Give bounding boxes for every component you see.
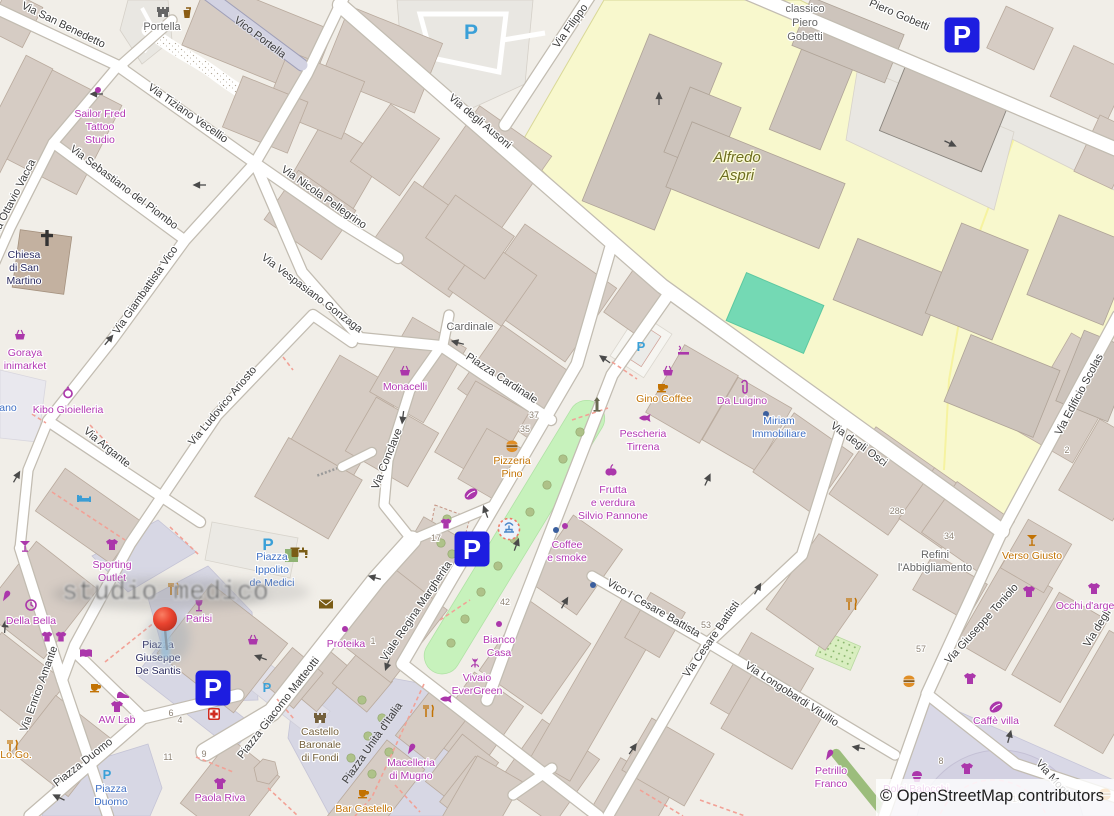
svg-text:Piazza: Piazza xyxy=(95,783,127,795)
svg-text:28c: 28c xyxy=(890,506,905,516)
svg-text:6: 6 xyxy=(168,708,173,718)
svg-text:Refini: Refini xyxy=(921,549,949,561)
svg-text:Duomo: Duomo xyxy=(94,796,128,808)
svg-text:Gino Coffee: Gino Coffee xyxy=(636,393,692,405)
svg-text:EverGreen: EverGreen xyxy=(452,685,503,697)
svg-text:Goraya: Goraya xyxy=(8,347,43,359)
svg-text:Occhi d'arge: Occhi d'arge xyxy=(1056,600,1114,612)
svg-text:© OpenStreetMap contributors: © OpenStreetMap contributors xyxy=(880,787,1104,805)
svg-text:Monacelli: Monacelli xyxy=(383,381,427,393)
svg-text:Macelleria: Macelleria xyxy=(387,757,435,769)
svg-text:P: P xyxy=(263,680,272,695)
svg-text:8: 8 xyxy=(938,756,943,766)
svg-text:Tattoo: Tattoo xyxy=(86,121,115,133)
svg-text:Portella: Portella xyxy=(143,21,181,33)
svg-text:P: P xyxy=(637,339,646,354)
svg-text:Lo.Go.: Lo.Go. xyxy=(0,749,32,761)
svg-text:17: 17 xyxy=(431,533,441,543)
svg-text:Piazza: Piazza xyxy=(256,551,288,563)
svg-text:37: 37 xyxy=(529,410,539,420)
svg-text:Verso Giusto: Verso Giusto xyxy=(1002,550,1062,562)
svg-text:Immobiliare: Immobiliare xyxy=(752,428,806,440)
svg-text:2: 2 xyxy=(1064,445,1069,455)
svg-text:Martino: Martino xyxy=(6,275,41,287)
svg-text:Da Luigino: Da Luigino xyxy=(717,395,767,407)
svg-text:inimarket: inimarket xyxy=(4,360,47,372)
svg-text:studio medico: studio medico xyxy=(62,577,269,607)
svg-text:Silvio Pannone: Silvio Pannone xyxy=(578,510,648,522)
svg-text:Miriam: Miriam xyxy=(763,415,795,427)
svg-text:Castello: Castello xyxy=(301,726,339,738)
svg-text:P: P xyxy=(204,673,222,704)
svg-text:Sailor Fred: Sailor Fred xyxy=(74,108,126,120)
svg-text:Studio: Studio xyxy=(85,134,115,146)
svg-text:Sporting: Sporting xyxy=(92,559,131,571)
svg-text:Frutta: Frutta xyxy=(599,484,627,496)
svg-text:Parisi: Parisi xyxy=(186,613,212,625)
svg-text:53: 53 xyxy=(701,620,711,630)
svg-text:Bar Castello: Bar Castello xyxy=(335,803,392,815)
svg-text:35: 35 xyxy=(520,424,530,434)
svg-text:di Fondi: di Fondi xyxy=(301,752,338,764)
svg-text:42: 42 xyxy=(500,597,510,607)
svg-text:34: 34 xyxy=(944,531,954,541)
svg-text:Kibo Gioielleria: Kibo Gioielleria xyxy=(33,404,104,416)
svg-text:11: 11 xyxy=(163,752,172,762)
svg-text:Alfredo: Alfredo xyxy=(712,149,761,166)
svg-text:Pino: Pino xyxy=(501,468,522,480)
svg-text:P: P xyxy=(103,767,112,782)
svg-text:classico: classico xyxy=(785,3,824,15)
svg-text:Pescheria: Pescheria xyxy=(620,428,667,440)
svg-text:P: P xyxy=(464,21,478,44)
svg-text:di San: di San xyxy=(9,262,39,274)
svg-text:9: 9 xyxy=(201,749,206,759)
svg-text:Bianco: Bianco xyxy=(483,634,515,646)
svg-text:e verdura: e verdura xyxy=(591,497,636,509)
svg-text:AW Lab: AW Lab xyxy=(99,714,136,726)
svg-text:Proteika: Proteika xyxy=(327,638,366,650)
svg-text:Vivaio: Vivaio xyxy=(463,672,492,684)
svg-text:Coffee: Coffee xyxy=(552,539,583,551)
svg-text:Gobetti: Gobetti xyxy=(787,31,822,43)
svg-text:Della Bella: Della Bella xyxy=(6,615,56,627)
svg-text:Chiesa: Chiesa xyxy=(8,249,41,261)
svg-text:De Santis: De Santis xyxy=(135,665,181,677)
svg-text:57: 57 xyxy=(916,644,926,654)
svg-text:Cardinale: Cardinale xyxy=(446,321,493,333)
svg-text:ano: ano xyxy=(0,402,17,414)
svg-text:Baronale: Baronale xyxy=(299,739,341,751)
svg-text:Piero: Piero xyxy=(792,17,818,29)
svg-text:P: P xyxy=(953,20,971,51)
svg-text:l'Abbigliamento: l'Abbigliamento xyxy=(898,562,972,574)
svg-text:Petrillo: Petrillo xyxy=(815,765,847,777)
svg-text:di Mugno: di Mugno xyxy=(389,770,432,782)
svg-text:4: 4 xyxy=(177,715,182,725)
svg-text:Pizzeria: Pizzeria xyxy=(493,455,531,467)
svg-text:Paola Riva: Paola Riva xyxy=(195,792,246,804)
svg-text:Ippolito: Ippolito xyxy=(255,564,289,576)
svg-text:Franco: Franco xyxy=(815,778,848,790)
svg-text:e smoke: e smoke xyxy=(547,552,587,564)
svg-text:P: P xyxy=(463,534,481,565)
svg-text:Aspri: Aspri xyxy=(719,167,755,184)
svg-text:1: 1 xyxy=(370,636,375,646)
svg-text:Casa: Casa xyxy=(487,647,512,659)
svg-text:Tirrena: Tirrena xyxy=(627,441,660,453)
svg-text:Caffè villa: Caffè villa xyxy=(973,715,1019,727)
